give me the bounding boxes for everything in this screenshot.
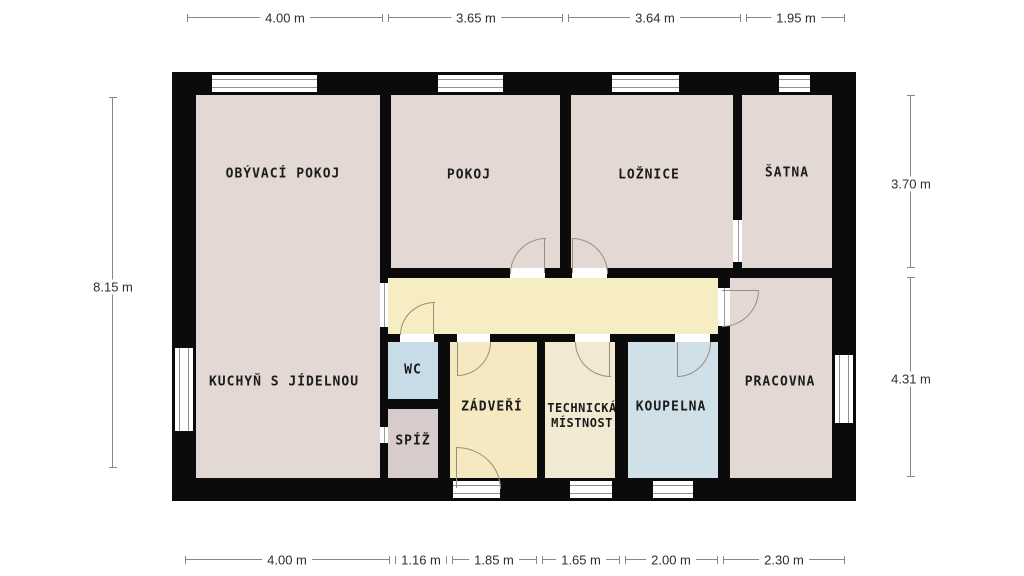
wall-corridor-top-3 <box>607 268 832 278</box>
door-leaf-pracovna <box>722 290 758 291</box>
window-top-pokoj <box>438 75 503 92</box>
wall-corridor-bottom-4 <box>610 334 675 342</box>
dim-label-top-4: 1.95 m <box>771 11 821 26</box>
dim-label-bottom-1: 4.00 m <box>262 553 312 568</box>
opening-kitchen-spiz-door <box>380 427 388 443</box>
dim-label-bottom-3: 1.85 m <box>469 553 519 568</box>
room-label-pokoj: POKOJ <box>447 168 491 183</box>
exterior-wall-bottom <box>172 478 856 501</box>
dim-label-top-3: 3.64 m <box>630 11 680 26</box>
wall-zadveri-technicka <box>537 342 545 478</box>
opening-kitchen-corridor <box>380 283 388 327</box>
exterior-wall-left <box>172 72 196 501</box>
dim-label-top-1: 4.00 m <box>260 11 310 26</box>
door-leaf-pokoj <box>544 238 545 273</box>
room-label-wc: WC <box>404 363 422 378</box>
wall-loznice-satna <box>733 95 742 220</box>
door-leaf-zadveri-top <box>457 342 458 375</box>
dim-label-right-2: 4.31 m <box>886 372 936 387</box>
room-living-kitchen-area <box>196 95 380 478</box>
dim-label-bottom-5: 2.00 m <box>646 553 696 568</box>
dim-label-right-1: 3.70 m <box>886 177 936 192</box>
door-leaf-technicka <box>609 342 610 376</box>
floor-plan: OBÝVACÍ POKOJ POKOJ LOŽNICE ŠATNA KUCHYŇ… <box>0 0 1024 576</box>
room-label-koupelna: KOUPELNA <box>636 400 707 415</box>
window-right-pracovna <box>835 355 853 423</box>
wall-kitchen-spiz-2 <box>380 443 388 478</box>
room-satna-area <box>742 95 832 268</box>
door-leaf-entrance <box>456 447 457 488</box>
room-label-satna: ŠATNA <box>765 166 809 181</box>
wall-kitchen-wc-1 <box>380 342 388 427</box>
room-label-technicka-line1: TECHNICKÁ <box>547 401 617 416</box>
window-top-loznice <box>612 75 679 92</box>
wall-corridor-bottom-2 <box>434 334 457 342</box>
window-bottom-technicka <box>570 481 612 498</box>
wall-corridor-bottom-3 <box>490 334 575 342</box>
room-label-spiz: SPÍŽ <box>395 434 430 449</box>
corridor-area <box>388 278 718 334</box>
wall-living-pokoj <box>380 95 391 268</box>
wall-wc-spiz <box>380 399 450 409</box>
room-label-living: OBÝVACÍ POKOJ <box>226 167 341 182</box>
wall-koupelna-pracovna <box>718 326 730 478</box>
opening-loznice-satna-door <box>733 220 742 262</box>
wall-pokoj-loznice <box>560 95 571 268</box>
dim-label-bottom-6: 2.30 m <box>759 553 809 568</box>
room-label-technicka-line2: MÍSTNOST <box>547 416 617 431</box>
wall-koupelna-pracovna-stub <box>718 278 730 288</box>
dim-label-bottom-4: 1.65 m <box>556 553 606 568</box>
door-leaf-wc <box>433 302 434 334</box>
wall-loznice-satna-stub <box>733 262 742 268</box>
door-leaf-koupelna <box>677 342 678 376</box>
door-leaf-loznice <box>572 238 573 273</box>
window-left-kitchen <box>175 348 193 431</box>
exterior-wall-right <box>832 72 856 501</box>
room-label-pracovna: PRACOVNA <box>745 375 816 390</box>
room-label-kitchen: KUCHYŇ S JÍDELNOU <box>209 375 359 390</box>
wall-wc-zadveri <box>438 342 450 478</box>
wall-corridor-top-2 <box>545 268 572 278</box>
room-label-zadveri: ZÁDVEŘÍ <box>461 400 523 415</box>
dim-label-bottom-2: 1.16 m <box>396 553 446 568</box>
wall-corridor-top-1 <box>380 268 510 278</box>
room-label-loznice: LOŽNICE <box>618 168 680 183</box>
dim-label-top-2: 3.65 m <box>451 11 501 26</box>
window-top-satna <box>779 75 810 92</box>
window-top-living <box>212 75 317 92</box>
wall-corridor-left-stub-bottom <box>380 327 388 334</box>
wall-corridor-bottom-1 <box>380 334 400 342</box>
window-bottom-koupelna <box>653 481 693 498</box>
dim-label-left: 8.15 m <box>88 280 138 295</box>
room-label-technicka: TECHNICKÁ MÍSTNOST <box>547 401 617 431</box>
